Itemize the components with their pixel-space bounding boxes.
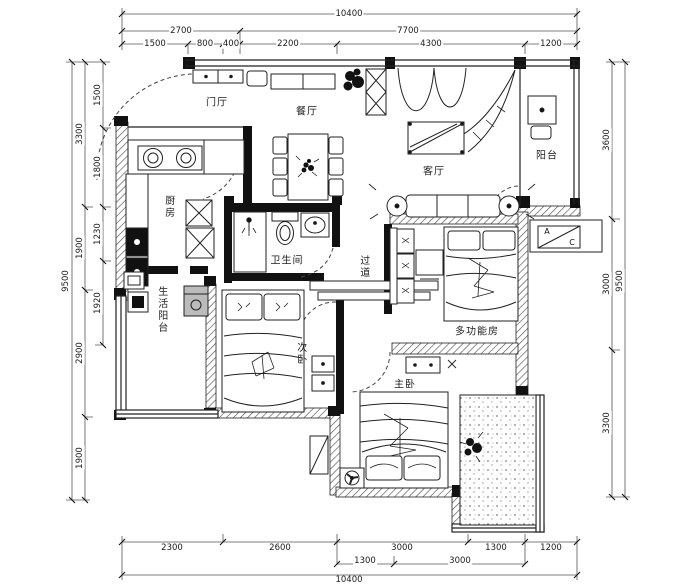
furniture-balcony [528,96,556,139]
dim-left-total: 9500 [62,269,71,293]
dim-bottom-row1-0: 2300 [160,544,184,553]
dim-right-inner-2: 3300 [603,411,612,435]
room-label-entry: 门厅 [206,97,228,109]
dim-bottom-row1-4: 1200 [539,544,563,553]
dim-top-row3-1: 800 [196,40,214,49]
room-label-service-balcony: 生活阳台 [155,286,167,334]
dim-bottom-row2-0: 1300 [353,557,377,566]
furniture-living [369,68,535,219]
dim-right-inner-0: 3600 [603,128,612,152]
floor-plan-page: 10400 2700 7700 1500 800 400 2200 4300 1… [0,0,690,588]
dim-top-row2-1: 7700 [396,27,420,36]
dim-top-row2-0: 2700 [169,27,193,36]
dim-left-inner-2: 1230 [94,222,103,246]
room-label-multi-room: 多功能房 [455,326,499,338]
corridor-bench [310,281,438,300]
room-label-balcony: 阳台 [536,150,558,162]
room-label-bathroom: 卫生间 [271,255,304,267]
ac-platform [530,220,602,252]
dim-left-outer-0: 3300 [76,122,85,146]
room-label-dining: 餐厅 [296,106,318,118]
dim-top-row3-4: 4300 [419,40,443,49]
dim-bottom-row2-1: 3000 [448,557,472,566]
dim-top-row3-3: 2200 [276,40,300,49]
dim-right-inner-1: 3000 [603,272,612,296]
floor-plan-drawing [0,0,690,588]
dim-top-row3-0: 1500 [143,40,167,49]
room-label-living: 客厅 [423,166,445,178]
dim-right-total: 9500 [616,269,625,293]
dim-bottom-row1-1: 2600 [268,544,292,553]
dim-top-total: 10400 [334,10,363,19]
furniture-dining [273,134,343,200]
plant-icon [344,69,365,91]
dim-top-row3-2: 400 [222,40,240,49]
dim-left-inner-1: 1800 [94,155,103,179]
dim-left-inner-0: 1500 [94,83,103,107]
room-label-corridor: 过道 [357,255,369,279]
furniture-multi-room [390,227,518,321]
dim-left-outer-1: 1900 [76,236,85,260]
dim-left-outer-3: 1900 [76,446,85,470]
ac-letter-a: A [544,228,549,236]
dim-bottom-row1-3: 1300 [484,544,508,553]
room-label-kitchen: 厨房 [162,195,174,219]
room-label-bedroom2: 次卧 [294,342,306,366]
dim-bottom-row1-2: 3000 [390,544,414,553]
dim-left-inner-3: 1920 [94,291,103,315]
ac-letter-c: C [569,239,575,247]
furniture-bedroom2 [222,290,334,412]
terrace [460,395,536,525]
room-label-master: 主卧 [394,379,416,391]
dim-bottom-total: 10400 [334,576,363,585]
dim-top-row3-5: 1200 [539,40,563,49]
dim-left-outer-2: 2900 [76,341,85,365]
